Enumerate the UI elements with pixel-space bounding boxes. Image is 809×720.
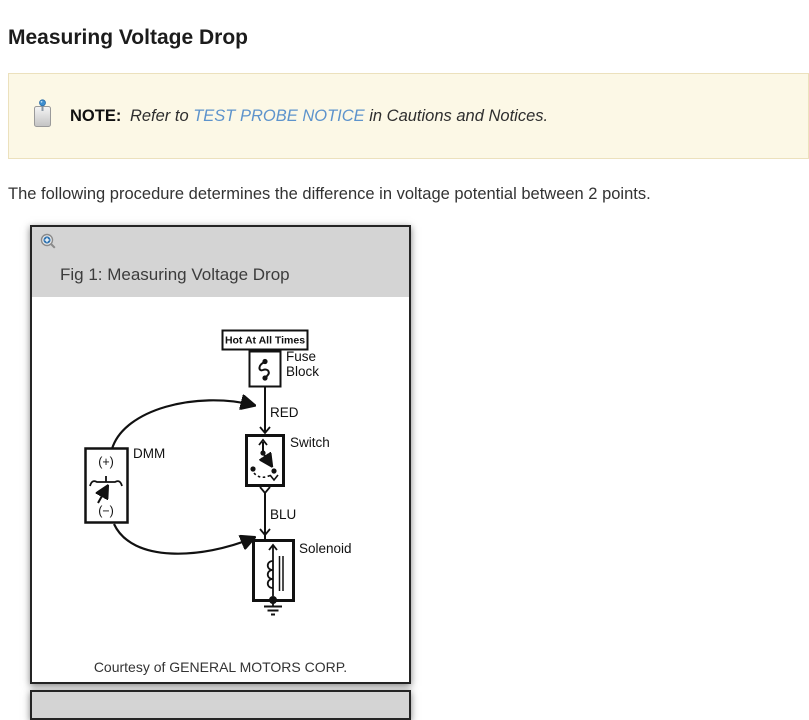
switch-label: Switch [290, 435, 330, 450]
fuse-block-symbol [250, 352, 281, 387]
dmm-label: DMM [133, 446, 165, 461]
intro-paragraph: The following procedure determines the d… [8, 185, 809, 204]
red-wire [260, 387, 270, 434]
solenoid-label: Solenoid [299, 541, 352, 556]
figure-caption: Fig 1: Measuring Voltage Drop [60, 265, 290, 284]
red-wire-label: RED [270, 405, 299, 420]
blu-wire-label: BLU [270, 507, 296, 522]
solenoid-symbol [254, 541, 294, 605]
hot-at-all-times-box: Hot At All Times [223, 331, 308, 350]
note-box: NOTE: Refer to TEST PROBE NOTICE in Caut… [8, 73, 809, 159]
note-before-link: Refer to [130, 107, 193, 125]
dmm-minus-label: (−) [98, 504, 114, 518]
next-figure-panel [30, 690, 411, 720]
note-after-link: in Cautions and Notices. [365, 107, 548, 125]
figure-credit: Courtesy of GENERAL MOTORS CORP. [32, 659, 409, 676]
dmm-negative-lead [114, 524, 253, 554]
ground-symbol [264, 600, 282, 615]
figure-header: Fig 1: Measuring Voltage Drop [32, 227, 409, 297]
dmm-plus-label: (+) [98, 455, 114, 469]
zoom-in-icon[interactable] [40, 233, 57, 250]
voltage-drop-diagram[interactable]: Hot At All Times Fuse Block RED [32, 323, 409, 623]
switch-symbol [247, 436, 284, 486]
blu-wire [260, 487, 270, 540]
hot-label: Hot At All Times [225, 335, 305, 347]
dmm-positive-lead [112, 400, 253, 449]
figure-panel: Fig 1: Measuring Voltage Drop Hot At All… [30, 225, 411, 684]
note-label: NOTE: [70, 107, 121, 125]
page-title: Measuring Voltage Drop [8, 26, 809, 50]
fuse-label-line2: Block [286, 364, 319, 379]
note-pin-icon [31, 99, 54, 133]
test-probe-notice-link[interactable]: TEST PROBE NOTICE [193, 107, 364, 125]
fuse-label-line1: Fuse [286, 349, 316, 364]
note-text: NOTE: Refer to TEST PROBE NOTICE in Caut… [70, 107, 548, 126]
figure-body: Hot At All Times Fuse Block RED [32, 297, 409, 682]
